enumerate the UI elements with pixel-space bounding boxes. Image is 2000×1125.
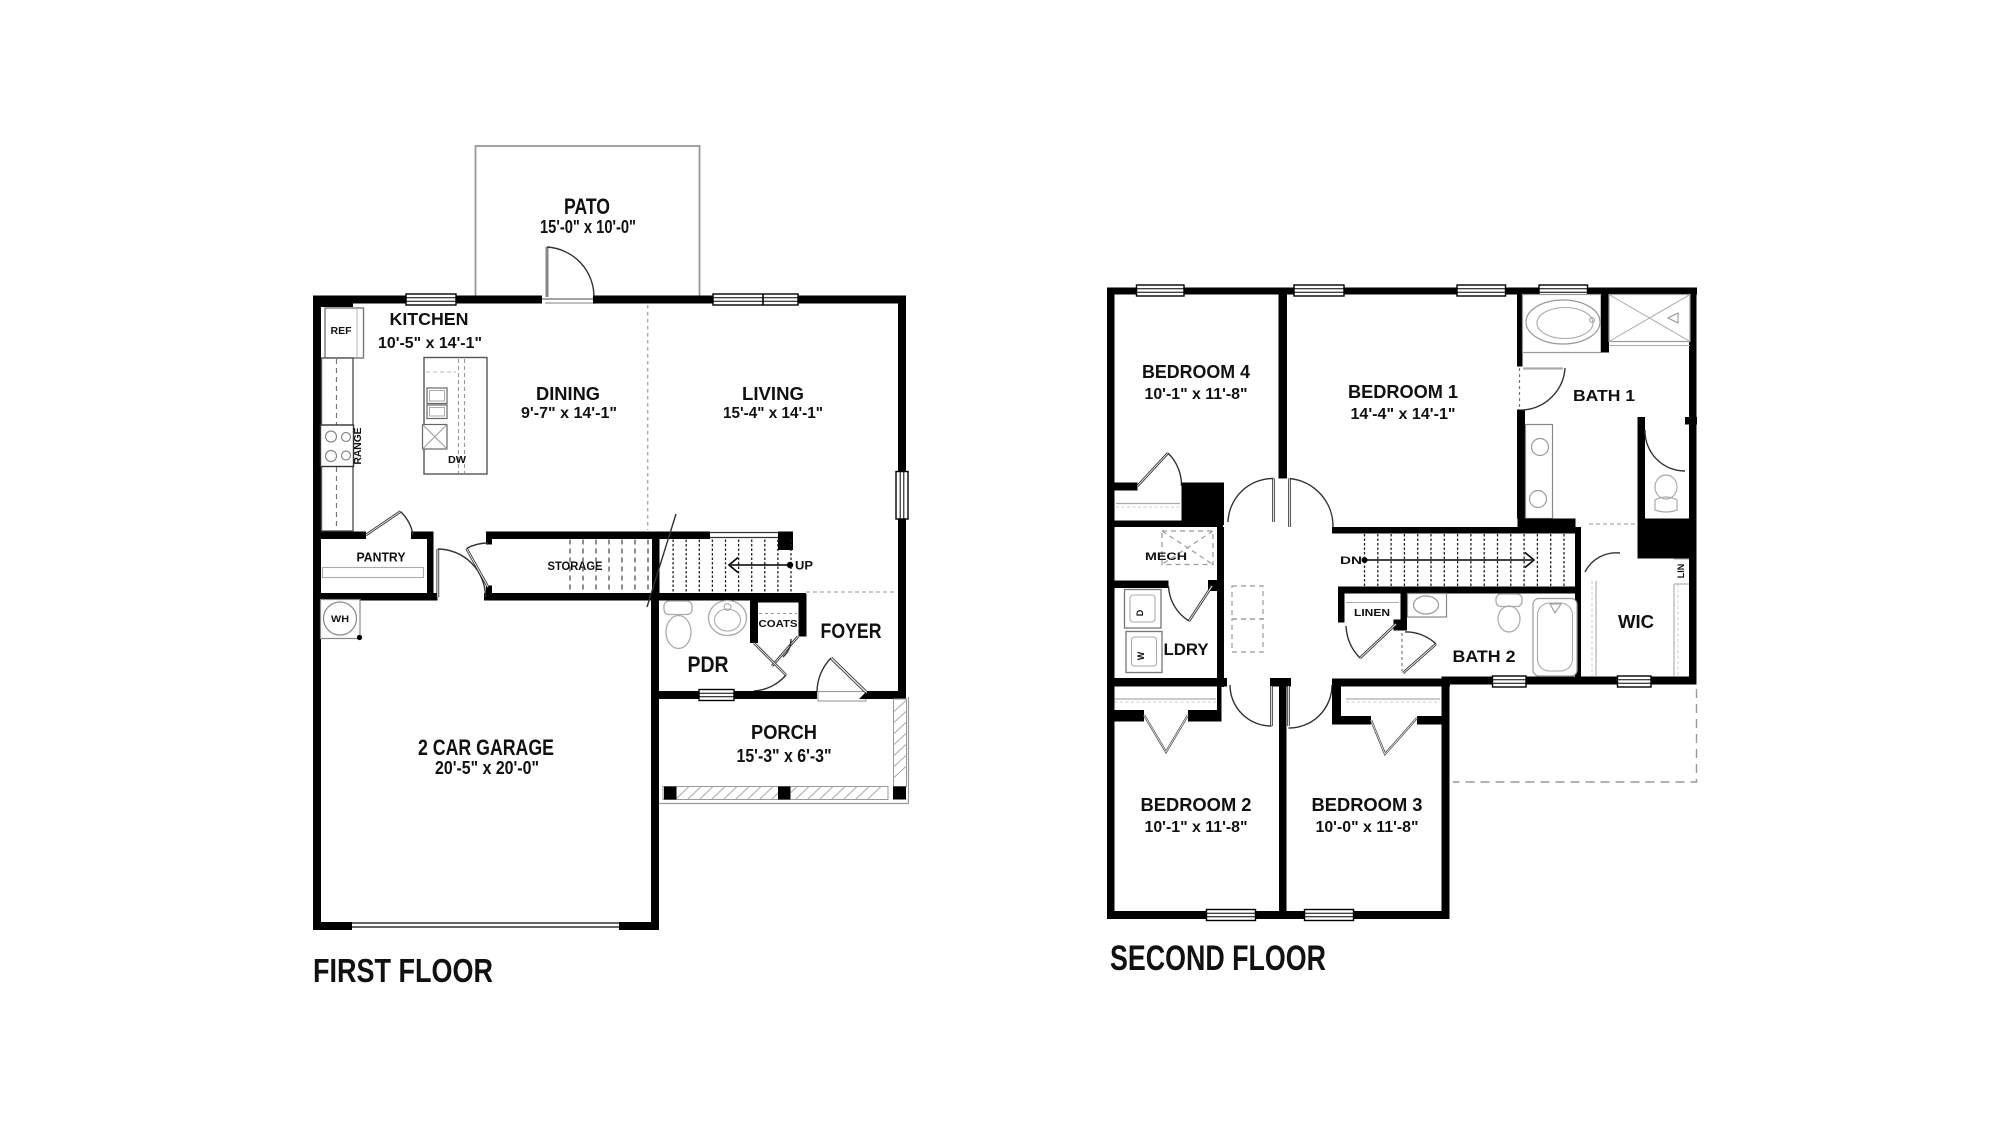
svg-text:DN: DN bbox=[1340, 555, 1362, 567]
svg-text:15'-4" x 14'-1": 15'-4" x 14'-1" bbox=[723, 405, 823, 422]
svg-text:KITCHEN: KITCHEN bbox=[390, 309, 469, 329]
svg-text:MECH: MECH bbox=[1145, 551, 1187, 563]
svg-text:10'-1" x 11'-8": 10'-1" x 11'-8" bbox=[1145, 386, 1248, 403]
svg-text:PDR: PDR bbox=[688, 652, 729, 677]
svg-text:REF: REF bbox=[331, 326, 352, 337]
svg-text:2 CAR GARAGE: 2 CAR GARAGE bbox=[418, 735, 554, 760]
svg-text:BEDROOM 2: BEDROOM 2 bbox=[1141, 795, 1252, 815]
svg-text:BEDROOM 4: BEDROOM 4 bbox=[1142, 362, 1250, 382]
svg-text:LDRY: LDRY bbox=[1164, 640, 1210, 659]
svg-text:COATS: COATS bbox=[759, 618, 798, 630]
svg-text:10'-5" x 14'-1": 10'-5" x 14'-1" bbox=[378, 335, 482, 352]
svg-text:LIN: LIN bbox=[1676, 564, 1686, 579]
svg-text:BEDROOM 1: BEDROOM 1 bbox=[1348, 382, 1458, 402]
svg-text:9'-7" x 14'-1": 9'-7" x 14'-1" bbox=[521, 405, 617, 422]
svg-text:W: W bbox=[1136, 651, 1146, 660]
svg-text:STORAGE: STORAGE bbox=[548, 561, 603, 573]
svg-text:20'-5" x 20'-0": 20'-5" x 20'-0" bbox=[435, 758, 539, 778]
svg-text:10'-0" x 11'-8": 10'-0" x 11'-8" bbox=[1316, 819, 1419, 836]
svg-text:FIRST FLOOR: FIRST FLOOR bbox=[313, 952, 493, 989]
svg-text:BEDROOM 3: BEDROOM 3 bbox=[1312, 795, 1423, 815]
svg-text:SECOND FLOOR: SECOND FLOOR bbox=[1110, 939, 1326, 978]
svg-text:BATH 1: BATH 1 bbox=[1573, 388, 1635, 405]
svg-text:15'-0" x 10'-0": 15'-0" x 10'-0" bbox=[540, 217, 636, 237]
svg-text:D: D bbox=[1135, 609, 1145, 616]
svg-text:LINEN: LINEN bbox=[1354, 607, 1390, 619]
svg-text:RANGE: RANGE bbox=[352, 428, 364, 465]
svg-text:PATO: PATO bbox=[564, 194, 610, 219]
svg-text:14'-4" x 14'-1": 14'-4" x 14'-1" bbox=[1351, 406, 1456, 423]
svg-text:FOYER: FOYER bbox=[821, 620, 882, 643]
svg-text:UP: UP bbox=[795, 559, 813, 573]
svg-text:BATH 2: BATH 2 bbox=[1453, 647, 1516, 666]
svg-text:LIVING: LIVING bbox=[742, 384, 804, 404]
svg-text:15'-3" x 6'-3": 15'-3" x 6'-3" bbox=[737, 746, 832, 766]
svg-text:10'-1" x 11'-8": 10'-1" x 11'-8" bbox=[1145, 819, 1248, 836]
svg-text:DW: DW bbox=[448, 454, 466, 466]
svg-text:DINING: DINING bbox=[536, 384, 600, 404]
svg-text:PANTRY: PANTRY bbox=[357, 551, 407, 565]
svg-text:PORCH: PORCH bbox=[751, 722, 817, 744]
svg-text:WIC: WIC bbox=[1618, 612, 1654, 632]
svg-text:WH: WH bbox=[331, 614, 349, 625]
